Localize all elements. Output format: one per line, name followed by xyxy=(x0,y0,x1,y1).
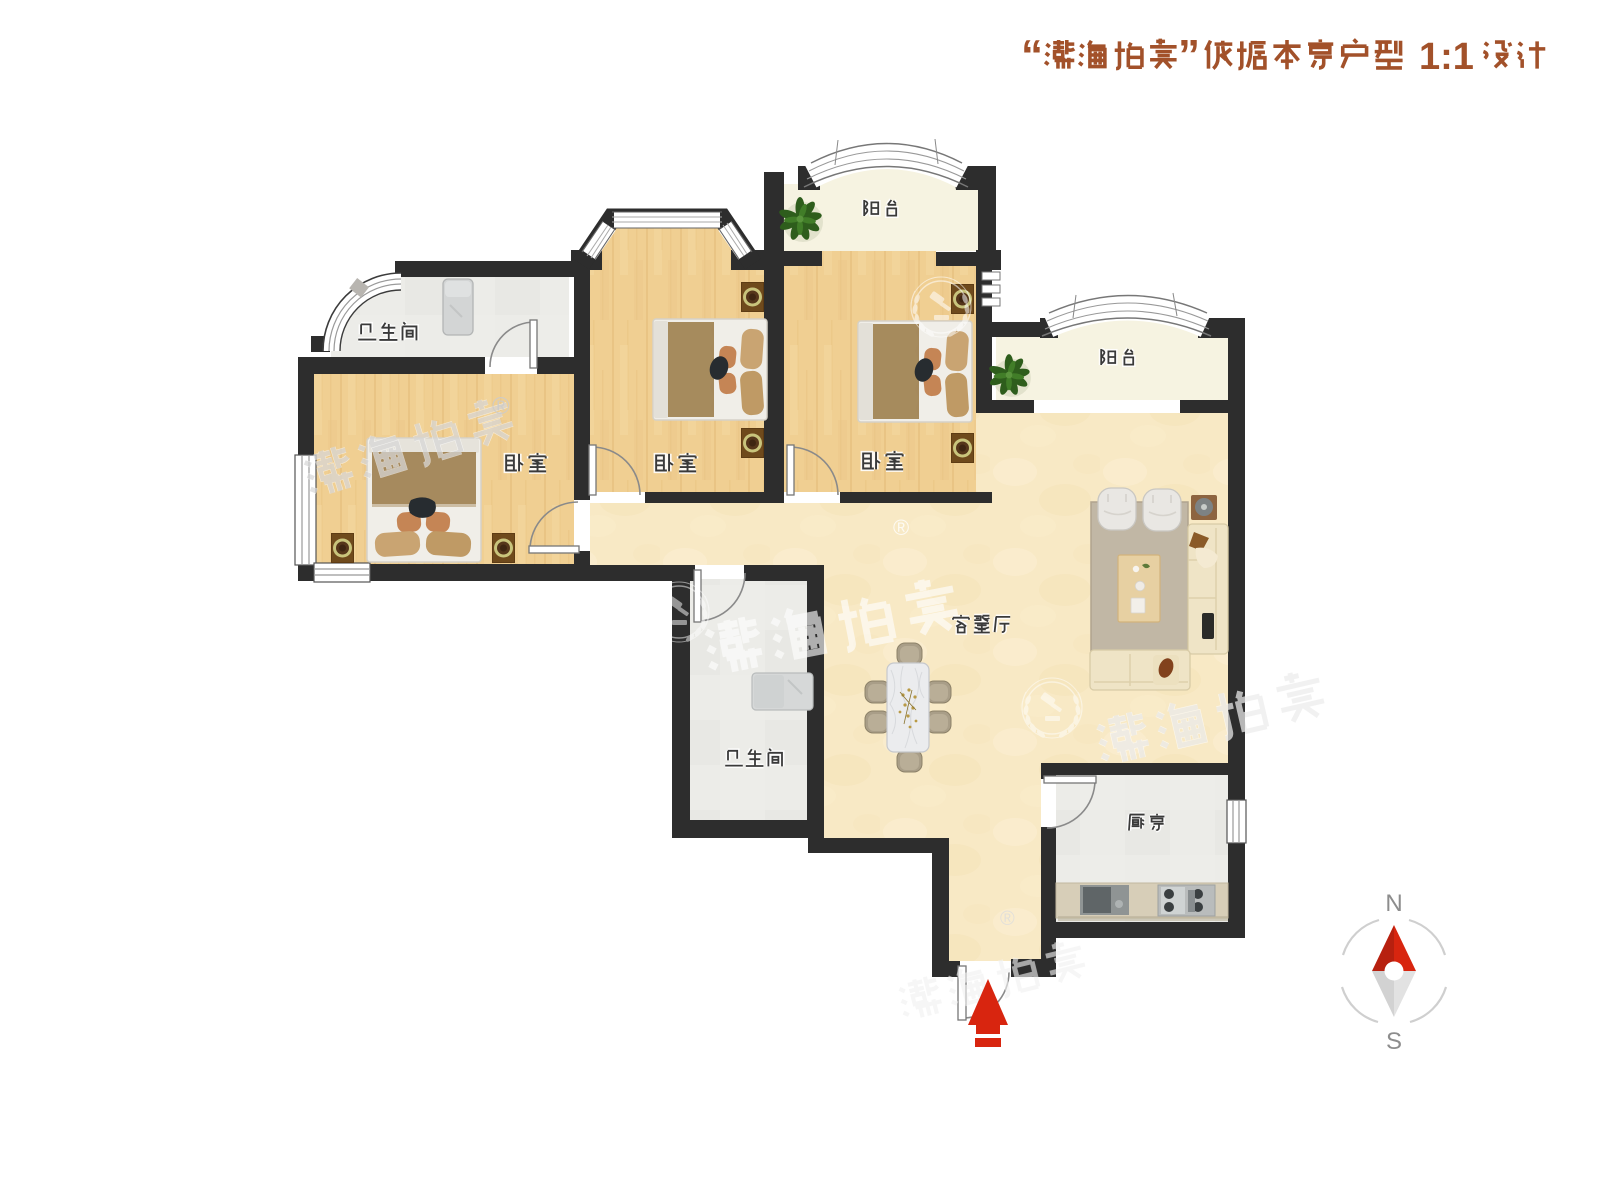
svg-text:®: ® xyxy=(492,393,510,420)
svg-text:1:1: 1:1 xyxy=(1419,36,1474,78)
svg-text:“: “ xyxy=(1021,31,1043,80)
svg-text:N: N xyxy=(1385,890,1402,917)
svg-text:®: ® xyxy=(893,515,909,540)
svg-text:”: ” xyxy=(1178,31,1200,80)
svg-text:®: ® xyxy=(1000,908,1015,930)
svg-text:S: S xyxy=(1386,1028,1402,1055)
